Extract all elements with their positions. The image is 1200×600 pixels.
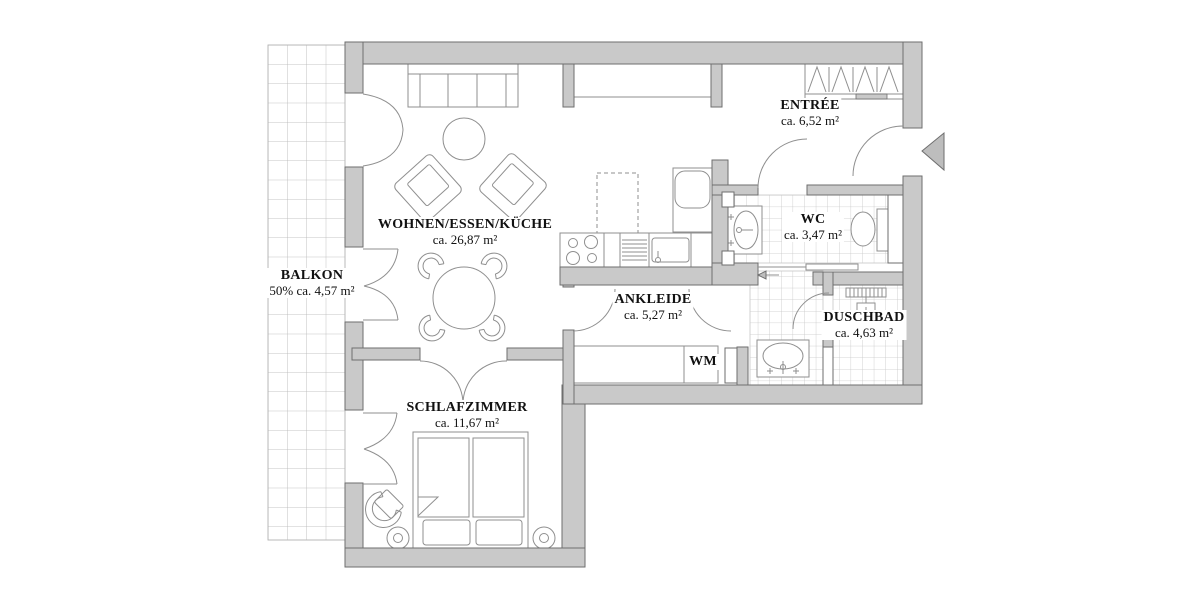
sideboard <box>574 63 712 97</box>
double-bed <box>413 432 528 548</box>
room-area: ca. 4,63 m² <box>824 326 905 341</box>
kitchen-sink <box>652 238 689 263</box>
armchair-left <box>393 153 464 224</box>
room-area: ca. 3,47 m² <box>784 228 842 243</box>
balcony-door-living-top <box>363 94 403 166</box>
balcony-door-bedroom <box>363 413 397 484</box>
tall-cabinet <box>673 168 712 232</box>
room-label-duschbad: DUSCHBAD ca. 4,63 m² <box>822 310 907 340</box>
room-area: ca. 26,87 m² <box>378 233 552 248</box>
floor-plan-page: BALKON 50% ca. 4,57 m² WOHNEN/ESSEN/KÜCH… <box>0 0 1200 600</box>
room-name: WC <box>784 212 842 228</box>
bedroom-double-door <box>420 361 507 404</box>
room-name: ANKLEIDE <box>614 292 691 308</box>
room-area: ca. 11,67 m² <box>406 416 527 431</box>
closet <box>574 346 684 383</box>
dining-table <box>433 267 495 329</box>
sofa <box>408 63 518 107</box>
room-name: WM <box>689 354 717 370</box>
nightstand-left <box>387 527 409 549</box>
room-label-entree: ENTRÉE ca. 6,52 m² <box>778 98 841 128</box>
room-name: BALKON <box>269 268 354 284</box>
balcony-door-living-bottom <box>363 249 398 320</box>
entrance-arrow <box>922 133 944 170</box>
ankleide-door-west <box>573 289 615 331</box>
room-label-schlafzimmer: SCHLAFZIMMER ca. 11,67 m² <box>404 400 529 430</box>
wardrobe <box>805 63 903 99</box>
nightstand-right <box>533 527 555 549</box>
room-label-wohnen-essen-kueche: WOHNEN/ESSEN/KÜCHE ca. 26,87 m² <box>376 217 554 247</box>
dining-chair <box>413 248 446 281</box>
room-label-balkon: BALKON 50% ca. 4,57 m² <box>267 268 356 298</box>
room-area: ca. 5,27 m² <box>614 308 691 323</box>
wc-sink <box>726 206 762 254</box>
wc-door <box>758 139 807 188</box>
room-label-wc: WC ca. 3,47 m² <box>782 212 844 242</box>
room-name: ENTRÉE <box>780 98 839 114</box>
entrance-door <box>853 126 903 176</box>
room-label-ankleide: ANKLEIDE ca. 5,27 m² <box>612 292 693 322</box>
coffee-table <box>443 118 485 160</box>
armchair-right <box>478 152 549 223</box>
floor-plan-drawing <box>0 0 1200 600</box>
room-name: WOHNEN/ESSEN/KÜCHE <box>378 217 552 233</box>
room-name: DUSCHBAD <box>824 310 905 326</box>
room-label-wm: WM <box>687 354 719 370</box>
fridge-dashed-outline <box>597 173 638 233</box>
vanity-sink <box>757 340 809 377</box>
room-area: ca. 6,52 m² <box>780 114 839 129</box>
room-area: 50% ca. 4,57 m² <box>269 284 354 299</box>
ankleide-door-east <box>689 289 731 331</box>
room-name: SCHLAFZIMMER <box>406 400 527 416</box>
